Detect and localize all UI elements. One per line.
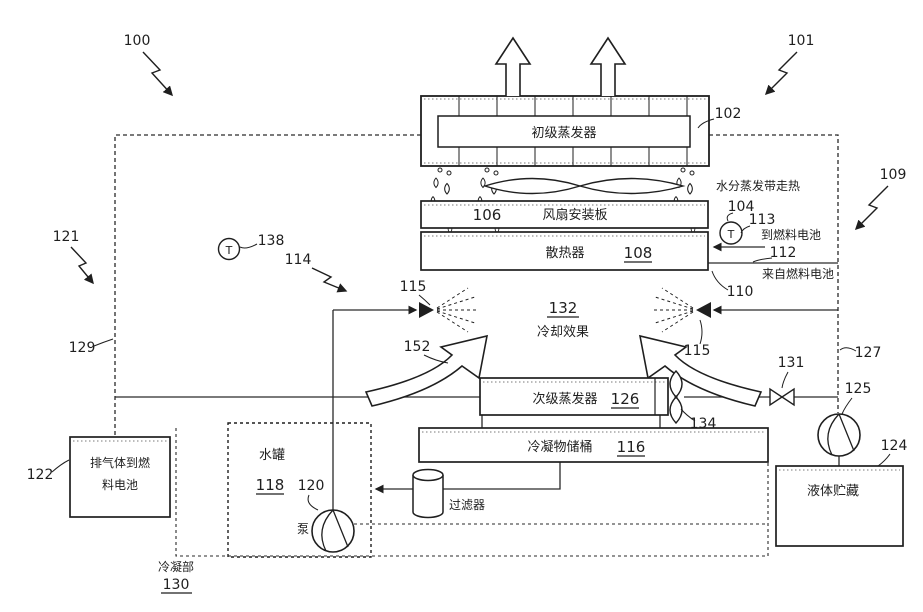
spray-lines xyxy=(437,288,479,332)
patent-figure: 初级蒸发器 106 风扇安装板 散热器 108 T 104 113 到燃料电池 … xyxy=(0,0,923,612)
lightning-114-icon xyxy=(312,268,346,291)
condensate-tank-box xyxy=(419,428,768,462)
condenser-section-label: 冷凝部 xyxy=(158,559,194,574)
cooling-effect-label: 冷却效果 xyxy=(537,325,589,340)
ref-109: 109 xyxy=(880,167,907,183)
fan-blade-icon xyxy=(485,179,580,194)
fan-134-icon xyxy=(670,397,682,423)
ref-102: 102 xyxy=(715,106,742,122)
ref-125: 125 xyxy=(845,381,872,397)
ref-115-right: 115 xyxy=(684,343,711,359)
ref-132: 132 xyxy=(549,299,578,317)
leader-122 xyxy=(52,460,69,472)
valve-icon xyxy=(782,389,794,405)
filter-body-icon xyxy=(413,475,443,518)
ref-130: 130 xyxy=(163,577,190,593)
fan-plate-label: 风扇安装板 xyxy=(542,207,607,223)
exhaust-box-label-line1: 排气体到燃 xyxy=(90,455,150,470)
ref-101: 101 xyxy=(788,33,815,49)
from-fuel-cell-note: 来自燃料电池 xyxy=(762,266,834,281)
temp-sensor-glyph: T xyxy=(727,228,735,241)
ref-100: 100 xyxy=(124,33,151,49)
water-tank-label: 水罐 xyxy=(259,448,285,463)
ref-131: 131 xyxy=(778,355,805,371)
leader-134 xyxy=(681,409,695,421)
leader-152 xyxy=(424,355,448,363)
ref-138: 138 xyxy=(258,233,285,249)
ref-124: 124 xyxy=(881,438,908,454)
lightning-121-icon xyxy=(71,247,93,283)
lightning-101-icon xyxy=(766,52,797,94)
ref-120: 120 xyxy=(298,478,325,494)
liquid-storage-label: 液体贮藏 xyxy=(807,484,859,499)
ref-114: 114 xyxy=(285,252,312,268)
valve-icon xyxy=(770,389,782,405)
pump-label: 泵 xyxy=(297,522,309,536)
liquid-storage-box xyxy=(776,466,903,546)
steam-arrow-icon xyxy=(591,38,625,96)
leader-129 xyxy=(94,339,113,346)
radiator-label: 散热器 xyxy=(545,246,584,261)
leader-131 xyxy=(782,372,788,388)
steam-arrow-icon xyxy=(496,38,530,96)
lightning-100-icon xyxy=(143,52,172,95)
ref-116: 116 xyxy=(617,438,646,456)
tank116-to-filter-line xyxy=(443,462,560,489)
filter-label: 过滤器 xyxy=(449,498,485,512)
secondary-evaporator-label: 次级蒸发器 xyxy=(532,391,597,407)
condensate-tank-label: 冷凝物储桶 xyxy=(527,439,592,455)
primary-evaporator-label: 初级蒸发器 xyxy=(531,125,596,141)
leader-115-right xyxy=(700,320,702,344)
spray-nozzle-icon xyxy=(419,302,434,318)
fan-blade-icon xyxy=(580,179,683,194)
leader-127 xyxy=(840,348,856,351)
ref-113: 113 xyxy=(749,212,776,228)
ref-126: 126 xyxy=(611,390,640,408)
filter-top-icon xyxy=(413,470,443,481)
leader-138 xyxy=(240,244,257,248)
evaporator-assembly: 初级蒸发器 xyxy=(421,38,709,166)
schematic-canvas: 初级蒸发器 106 风扇安装板 散热器 108 T 104 113 到燃料电池 … xyxy=(0,0,923,612)
ref-115-left: 115 xyxy=(400,279,427,295)
to-fuel-cell-note: 到燃料电池 xyxy=(761,227,821,242)
leader-124 xyxy=(878,454,890,466)
ref-110: 110 xyxy=(727,284,754,300)
ref-108: 108 xyxy=(624,244,653,262)
ref-122: 122 xyxy=(27,467,54,483)
leader-120 xyxy=(308,495,318,510)
ref-106: 106 xyxy=(473,206,502,224)
temp-sensor-glyph: T xyxy=(225,244,233,257)
ref-112: 112 xyxy=(770,245,797,261)
lightning-109-icon xyxy=(856,186,888,229)
ref-121: 121 xyxy=(53,229,80,245)
water-evaporation-note: 水分蒸发带走热 xyxy=(716,178,800,193)
spray-nozzle-icon xyxy=(696,302,711,318)
spray-lines xyxy=(651,288,693,332)
ref-129: 129 xyxy=(69,340,96,356)
left-spray-nozzle: 115 xyxy=(400,279,479,332)
ref-118: 118 xyxy=(256,476,285,494)
leader-125 xyxy=(842,398,852,414)
ref-152: 152 xyxy=(404,339,431,355)
exhaust-box xyxy=(70,437,170,517)
fan-hub xyxy=(674,395,677,398)
exhaust-box-label-line2: 料电池 xyxy=(102,478,138,492)
leader-110 xyxy=(712,271,728,290)
ref-127: 127 xyxy=(855,345,882,361)
